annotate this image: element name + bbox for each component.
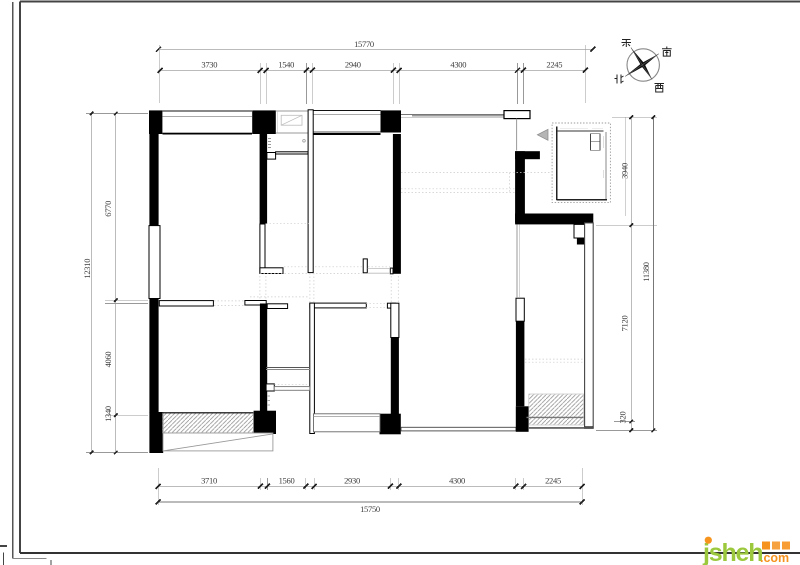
svg-text:1540: 1540 (278, 60, 294, 70)
svg-text:15750: 15750 (360, 504, 380, 514)
svg-text:2930: 2930 (344, 476, 360, 486)
svg-text:3730: 3730 (201, 60, 217, 70)
svg-text:1340: 1340 (103, 406, 113, 422)
svg-text:6770: 6770 (103, 201, 113, 217)
svg-text:2940: 2940 (345, 60, 361, 70)
svg-text:1560: 1560 (279, 476, 295, 486)
svg-text:.com: .com (760, 551, 789, 565)
svg-text:12310: 12310 (82, 259, 92, 279)
svg-text:4300: 4300 (449, 476, 465, 486)
svg-text:320: 320 (618, 412, 628, 424)
svg-text:jsheh: jsheh (702, 539, 762, 565)
svg-text:3940: 3940 (619, 163, 629, 179)
svg-text:4300: 4300 (450, 60, 466, 70)
svg-text:3710: 3710 (201, 476, 217, 486)
svg-text:4060: 4060 (103, 352, 113, 368)
svg-text:7120: 7120 (619, 316, 629, 332)
svg-text:11380: 11380 (641, 262, 651, 281)
svg-text:2245: 2245 (546, 60, 562, 70)
svg-text:2245: 2245 (545, 476, 561, 486)
svg-text:15770: 15770 (354, 39, 374, 49)
